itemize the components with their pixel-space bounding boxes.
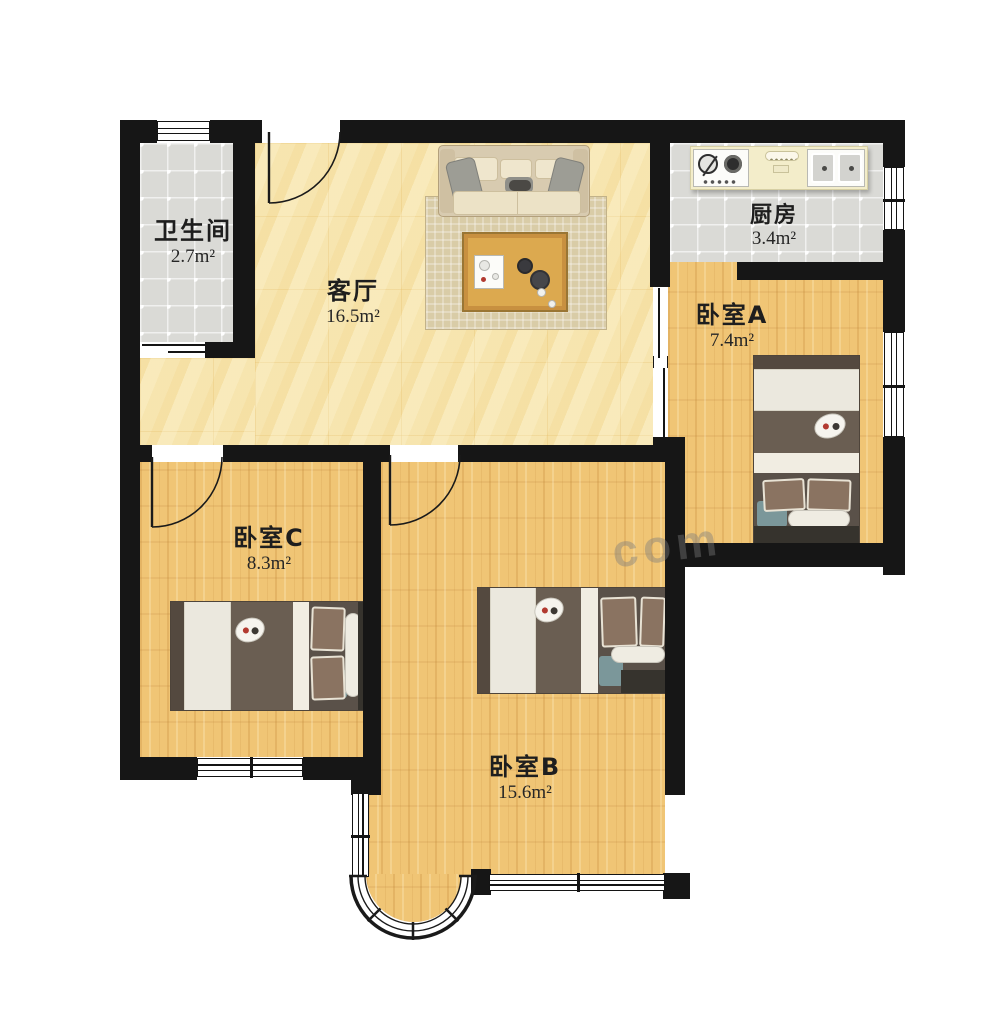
window-bedroom-b-left <box>352 793 369 877</box>
wall-mid <box>140 445 152 462</box>
room-name: 厨房 <box>750 203 798 228</box>
bench-pillow <box>639 597 666 648</box>
wall-kitchen-left <box>650 120 670 287</box>
label-bedroom-a: 卧室A 7.4m² <box>696 302 769 352</box>
bench-pillow <box>310 655 346 700</box>
bowl-icon <box>530 270 550 290</box>
bay-window-tick <box>446 909 459 922</box>
hood-control <box>765 151 799 161</box>
bed-decor-cushion <box>531 594 567 627</box>
sofa-throw-dark <box>509 180 531 191</box>
stove-knobs <box>702 180 738 184</box>
dot-icon <box>550 606 559 615</box>
bench-pillow <box>310 606 346 651</box>
bed-c <box>170 601 364 711</box>
bowl-icon <box>517 258 533 274</box>
tea-tray <box>474 255 504 289</box>
wall-c-bottom <box>120 757 197 780</box>
bay-window-floor <box>366 874 462 922</box>
bay-window-tick <box>368 909 381 922</box>
window-kitchen-right <box>884 167 904 230</box>
bed-pillow-band <box>184 602 231 710</box>
wall-mid <box>458 445 682 462</box>
bench-pillow <box>806 478 851 512</box>
wall-mid <box>223 445 390 462</box>
bench-bolster <box>611 646 665 663</box>
sofa-seat-divider <box>517 192 518 214</box>
bed-decor-cushion <box>811 409 849 442</box>
teapot-icon <box>479 260 490 271</box>
flower-icon <box>242 626 250 634</box>
room-name: 卧室B <box>489 754 561 782</box>
bed-foot-band <box>754 453 859 473</box>
bed-decor-cushion <box>232 614 268 647</box>
bed-foot-band <box>293 602 309 710</box>
sofa-seat <box>453 191 581 215</box>
hallway-floor <box>140 358 255 445</box>
label-bedroom-b: 卧室B 15.6m² <box>489 754 561 804</box>
burner-handle <box>702 156 717 177</box>
bed-headboard <box>754 356 859 370</box>
bathroom-sliding-door <box>168 351 205 353</box>
label-bathroom: 卫生间 2.7m² <box>154 218 232 268</box>
wall-right <box>883 120 905 167</box>
bench-pillow <box>600 596 638 647</box>
bed-headboard <box>171 602 184 710</box>
cup-icon <box>548 300 556 308</box>
sink-basin <box>838 153 862 183</box>
bedroom-a-sliding-door-gap <box>654 288 667 437</box>
drain-icon <box>822 166 827 171</box>
bench-base <box>621 670 668 693</box>
room-area: 3.4m² <box>750 228 798 251</box>
bed-pillow-band <box>754 369 859 411</box>
bed-headboard <box>478 588 490 693</box>
window-bedroom-c-bottom <box>197 758 303 777</box>
bed-foot-band <box>581 588 598 693</box>
bathroom-sliding-door <box>142 344 205 346</box>
tea-red-item <box>481 277 486 282</box>
bed-a <box>753 355 860 543</box>
room-name: 卧室C <box>233 525 305 553</box>
bed-bench <box>598 588 668 693</box>
wall-kitchen-bottom <box>737 262 883 280</box>
wall-b-right <box>665 462 685 795</box>
room-name: 客厅 <box>326 278 380 306</box>
room-area: 7.4m² <box>696 329 769 352</box>
wall-b-corner <box>351 757 381 795</box>
bed-b <box>477 587 667 694</box>
wall-bay-wedge <box>471 869 491 895</box>
dot-icon <box>831 422 840 431</box>
floor-plan: 卫生间 2.7m² 客厅 16.5m² 厨房 3.4m² 卧室A 7.4m² 卧… <box>0 0 1002 1024</box>
bed-bench <box>309 602 365 710</box>
room-name: 卧室A <box>696 302 769 330</box>
wall-right <box>883 230 905 332</box>
bedroom-a-sliding-door <box>663 368 665 437</box>
wall-bathroom-bottom <box>205 342 233 358</box>
room-area: 2.7m² <box>154 245 232 268</box>
label-kitchen: 厨房 3.4m² <box>750 203 798 251</box>
wall-slide-block <box>653 437 685 462</box>
bench-base <box>754 526 859 544</box>
drain-icon <box>849 166 854 171</box>
room-area: 15.6m² <box>489 781 561 804</box>
room-area: 16.5m² <box>326 305 380 328</box>
sink-basin <box>811 153 835 183</box>
room-name: 卫生间 <box>154 218 232 246</box>
wall-left <box>120 120 140 780</box>
flower-icon <box>822 422 830 430</box>
window-bedroom-b-bottom <box>489 874 665 891</box>
window-bathroom-top <box>157 121 210 141</box>
sofa-back-cushion <box>500 159 532 179</box>
label-living: 客厅 16.5m² <box>326 278 380 328</box>
wall-c-b-divider <box>363 462 381 757</box>
control-panel <box>773 165 789 173</box>
dot-icon <box>251 626 260 635</box>
coffee-table <box>462 232 568 312</box>
bed-pillow-band <box>490 588 536 693</box>
burner-icon <box>724 155 742 173</box>
kitchen-counter <box>690 146 868 190</box>
bedroom-a-sliding-door <box>658 288 660 358</box>
label-bedroom-c: 卧室C 8.3m² <box>233 525 305 575</box>
flower-icon <box>541 606 549 614</box>
wall-b-corner <box>663 873 690 899</box>
cup-icon <box>537 288 546 297</box>
teacup-icon <box>492 273 499 280</box>
double-sink <box>807 149 865 187</box>
wall-top <box>340 120 883 143</box>
sofa <box>438 145 590 217</box>
window-bedroom-a-right <box>884 332 904 437</box>
bench-pillow <box>762 478 806 512</box>
bed-bench <box>754 473 859 544</box>
room-area: 8.3m² <box>233 552 305 575</box>
stove <box>693 149 749 187</box>
burner-icon <box>698 154 718 174</box>
wall-bathroom-right <box>233 120 255 358</box>
